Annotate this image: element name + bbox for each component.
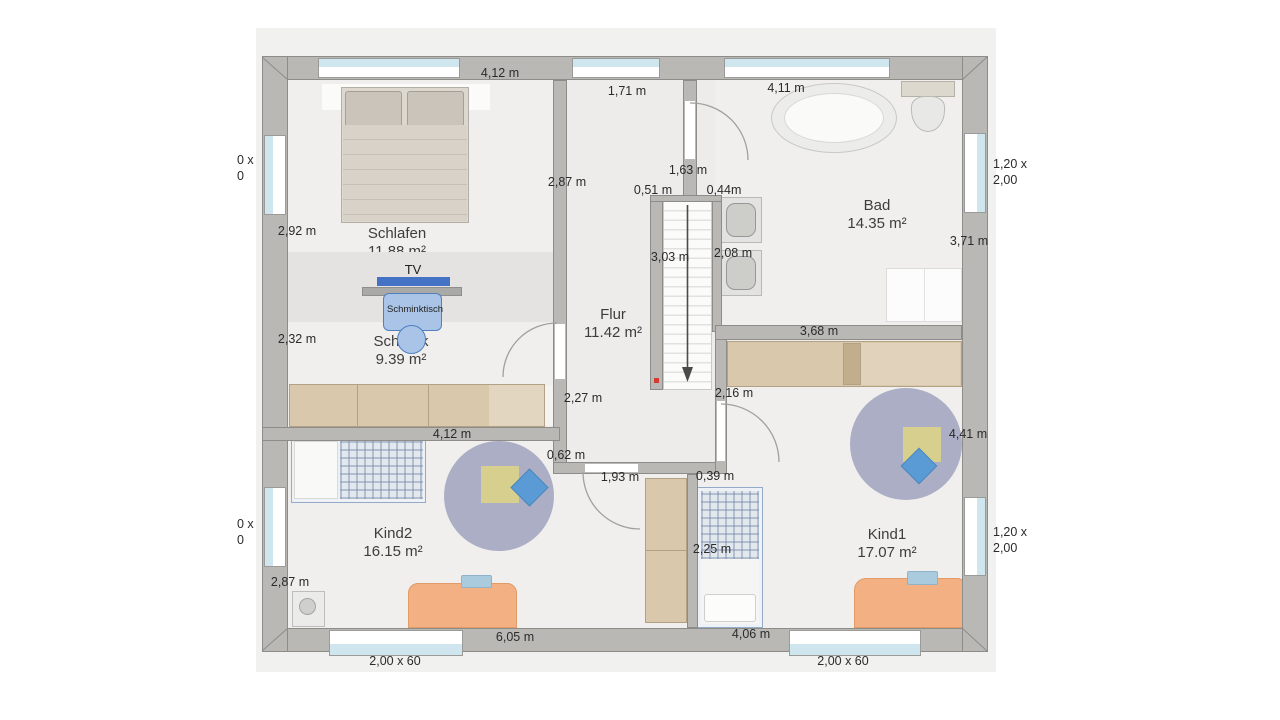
window-flur-top bbox=[572, 58, 660, 78]
desk-kind1 bbox=[854, 578, 964, 628]
staircase bbox=[663, 201, 712, 390]
dim-label: 3,68 m bbox=[800, 324, 838, 338]
window-schlafen-left bbox=[264, 135, 286, 215]
dim-label: 0,51 m bbox=[634, 183, 672, 197]
sink-basin-top bbox=[726, 203, 756, 237]
wardrobe-divider bbox=[357, 385, 358, 426]
bed-pillow-kind1 bbox=[704, 594, 756, 622]
dim-label: 3,03 m bbox=[651, 250, 689, 264]
dim-label: 1,93 m bbox=[601, 470, 639, 484]
bathtub-inner bbox=[784, 93, 884, 143]
dim-label: 0,44m bbox=[707, 183, 742, 197]
desk-chair-kind2 bbox=[461, 575, 492, 588]
tv-icon bbox=[377, 277, 450, 286]
window-kind2-bottom bbox=[329, 630, 463, 656]
window-size-line: 0 x bbox=[237, 152, 254, 168]
window-bad-right bbox=[964, 133, 986, 213]
bath-cabinet-divider bbox=[924, 269, 925, 321]
wall-schrank-kind2 bbox=[262, 427, 560, 441]
room-area-schrank: 9.39 m² bbox=[373, 351, 428, 369]
room-name-kind1: Kind1 bbox=[857, 526, 916, 544]
room-name-schlafen: Schlafen bbox=[368, 225, 426, 243]
dim-label: 3,71 m bbox=[950, 234, 988, 248]
dim-label: 2,87 m bbox=[548, 175, 586, 189]
dim-label: 0,39 m bbox=[696, 469, 734, 483]
room-area-flur: 11.42 m² bbox=[584, 324, 642, 342]
dim-label: 6,05 m bbox=[496, 630, 534, 644]
dim-label: 1,63 m bbox=[669, 163, 707, 177]
window-size-label-bottom-right: 2,00 x 60 bbox=[817, 654, 868, 668]
sink-basin-bottom bbox=[726, 256, 756, 290]
wardrobe-kind1-dark-segment bbox=[843, 343, 861, 385]
window-size-label-left-top-clipped: 0 x 0 bbox=[237, 152, 254, 184]
window-size-line: 0 x bbox=[237, 516, 254, 532]
room-area-kind1: 17.07 m² bbox=[857, 544, 916, 562]
wardrobe-column-divider bbox=[646, 550, 686, 551]
dim-label: 2,32 m bbox=[278, 332, 316, 346]
wardrobe-divider bbox=[428, 385, 429, 426]
wall-stair-right bbox=[712, 201, 722, 332]
wall-schlafen-flur bbox=[553, 80, 567, 474]
room-label-bad: Bad 14.35 m² bbox=[847, 197, 906, 233]
wardrobe-gap bbox=[545, 386, 553, 425]
room-label-kind2: Kind2 16.15 m² bbox=[363, 525, 422, 561]
room-name-bad: Bad bbox=[847, 197, 906, 215]
window-size-label-right-top: 1,20 x 2,00 bbox=[993, 156, 1027, 188]
washing-machine-drum bbox=[299, 598, 316, 615]
window-size-line: 0 bbox=[237, 532, 254, 548]
dim-label: 2,08 m bbox=[714, 246, 752, 260]
desk-chair-kind1 bbox=[907, 571, 938, 585]
schminktisch-label: Schminktisch bbox=[387, 304, 443, 315]
dim-label: 1,71 m bbox=[608, 84, 646, 98]
dim-label: 2,16 m bbox=[715, 386, 753, 400]
dim-label: 0,62 m bbox=[547, 448, 585, 462]
room-name-kind2: Kind2 bbox=[363, 525, 422, 543]
wall-bad-kind1 bbox=[715, 325, 962, 340]
tv-label: TV bbox=[405, 262, 422, 277]
window-kind1-right bbox=[964, 497, 986, 576]
window-kind2-left bbox=[264, 487, 286, 567]
room-area-kind2: 16.15 m² bbox=[363, 543, 422, 561]
door-kind1 bbox=[716, 400, 726, 462]
dim-label: 4,12 m bbox=[481, 66, 519, 80]
toilet-cistern bbox=[901, 81, 955, 97]
window-schlafen-top bbox=[318, 58, 460, 78]
door-schlafen bbox=[554, 323, 566, 380]
window-kind1-bottom bbox=[789, 630, 921, 656]
dim-label: 4,41 m bbox=[949, 427, 987, 441]
window-size-label-right-bottom: 1,20 x 2,00 bbox=[993, 524, 1027, 556]
room-area-bad: 14.35 m² bbox=[847, 215, 906, 233]
floor-plan-page: 11.88 m² Schlafen Schrank 9.39 m² Flur 1… bbox=[0, 0, 1280, 720]
window-size-label-bottom-left: 2,00 x 60 bbox=[369, 654, 420, 668]
bed-pillow-left bbox=[345, 91, 402, 127]
room-label-kind1: Kind1 17.07 m² bbox=[857, 526, 916, 562]
window-size-line: 1,20 x bbox=[993, 156, 1027, 172]
window-size-line: 2,00 bbox=[993, 540, 1027, 556]
dim-label: 2,92 m bbox=[278, 224, 316, 238]
dim-label: 2,27 m bbox=[564, 391, 602, 405]
bed-blanket-kind2 bbox=[340, 441, 423, 499]
wardrobe-kind1-light-segment bbox=[861, 343, 960, 385]
desk-kind2 bbox=[408, 583, 517, 628]
window-bad-top bbox=[724, 58, 890, 78]
dim-label: 2,87 m bbox=[271, 575, 309, 589]
door-bad bbox=[684, 100, 696, 160]
room-label-flur: Flur 11.42 m² bbox=[584, 306, 642, 342]
window-size-line: 0 bbox=[237, 168, 254, 184]
bed-mattress-kind2 bbox=[294, 441, 338, 499]
dim-label: 4,06 m bbox=[732, 627, 770, 641]
wall-stair-left bbox=[650, 201, 663, 390]
dim-label: 2,25 m bbox=[693, 542, 731, 556]
dim-label: 4,11 m bbox=[767, 81, 804, 95]
stair-start-dot bbox=[654, 378, 659, 383]
wardrobe-light-segment bbox=[489, 385, 544, 426]
dim-label: 4,12 m bbox=[433, 427, 471, 441]
stool-icon bbox=[397, 325, 426, 354]
window-size-line: 2,00 bbox=[993, 172, 1027, 188]
bed-pillow-right bbox=[407, 91, 464, 127]
room-name-flur: Flur bbox=[584, 306, 642, 324]
window-size-line: 1,20 x bbox=[993, 524, 1027, 540]
window-size-label-left-bottom-clipped: 0 x 0 bbox=[237, 516, 254, 548]
bed-blanket bbox=[343, 125, 467, 221]
